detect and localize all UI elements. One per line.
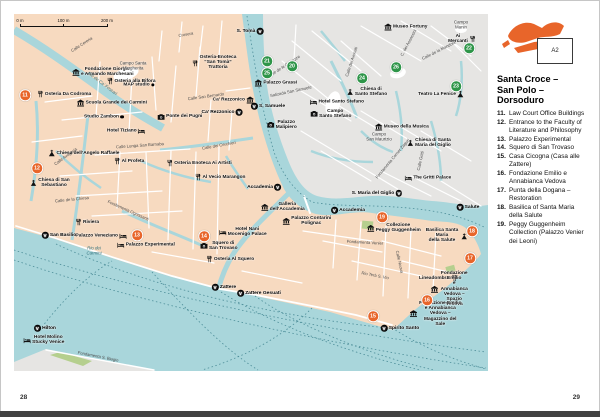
sight-list-item: 12.Entrance to the Faculty of Literature… <box>497 119 589 136</box>
sight-list-item: 19.Peggy Guggenheim Collection (Palazzo … <box>497 221 589 247</box>
sight-marker: 13 <box>131 229 143 241</box>
sight-list-item: 13.Palazzo Experimental <box>497 136 589 145</box>
sight-list-item: 15.Casa Cicogna (Casa alle Zattere) <box>497 153 589 170</box>
city-map: Fondazione Giorgio e Armando MarchesaniM… <box>14 14 488 371</box>
scale-label: 200 m <box>101 18 113 23</box>
reference-marker: 20 <box>286 60 298 72</box>
reference-marker: 24 <box>356 72 368 84</box>
locator-grid-cell: A2 <box>537 38 573 64</box>
page-number-left: 28 <box>20 394 27 401</box>
sight-marker: 17 <box>464 252 476 264</box>
scale-bar: 0 m100 m200 m <box>20 18 108 30</box>
sight-list-item: 18.Basilica of Santa Maria della Salute <box>497 204 589 221</box>
sight-marker: 16 <box>421 294 433 306</box>
reference-marker: 25 <box>261 67 273 79</box>
sight-list-item: 14.Squero di San Trovaso <box>497 144 589 153</box>
page-title: Santa Croce – San Polo – Dorsoduro <box>497 74 558 106</box>
sight-marker: 18 <box>466 225 478 237</box>
sight-marker: 15 <box>367 310 379 322</box>
sight-marker: 11 <box>19 89 31 101</box>
map-marker-layer: 11121314151617181920212524262322 <box>14 14 488 371</box>
sight-marker: 12 <box>31 162 43 174</box>
guidebook-page: { "page": { "left_number": "28", "right_… <box>0 0 600 417</box>
sight-marker: 14 <box>198 230 210 242</box>
sight-list-item: 17.Punta della Dogana – Restoration <box>497 187 589 204</box>
scale-label: 100 m <box>58 18 70 23</box>
scale-bar-line <box>20 26 108 27</box>
reference-marker: 21 <box>261 55 273 67</box>
reference-marker: 23 <box>450 80 462 92</box>
sight-list-item: 11.Law Court Office Buildings <box>497 110 589 119</box>
locator-label: A2 <box>551 48 558 54</box>
page-bottom-edge <box>0 411 600 417</box>
sight-list: 11.Law Court Office Buildings12.Entrance… <box>497 110 589 246</box>
district-locator: A2 <box>498 18 586 80</box>
scale-label: 0 m <box>16 18 23 23</box>
reference-marker: 22 <box>463 42 475 54</box>
sight-marker: 19 <box>376 211 388 223</box>
reference-marker: 26 <box>390 61 402 73</box>
page-number-right: 29 <box>573 394 580 401</box>
sight-list-item: 16.Fondazione Emilio e Annabianca Vedova <box>497 170 589 187</box>
